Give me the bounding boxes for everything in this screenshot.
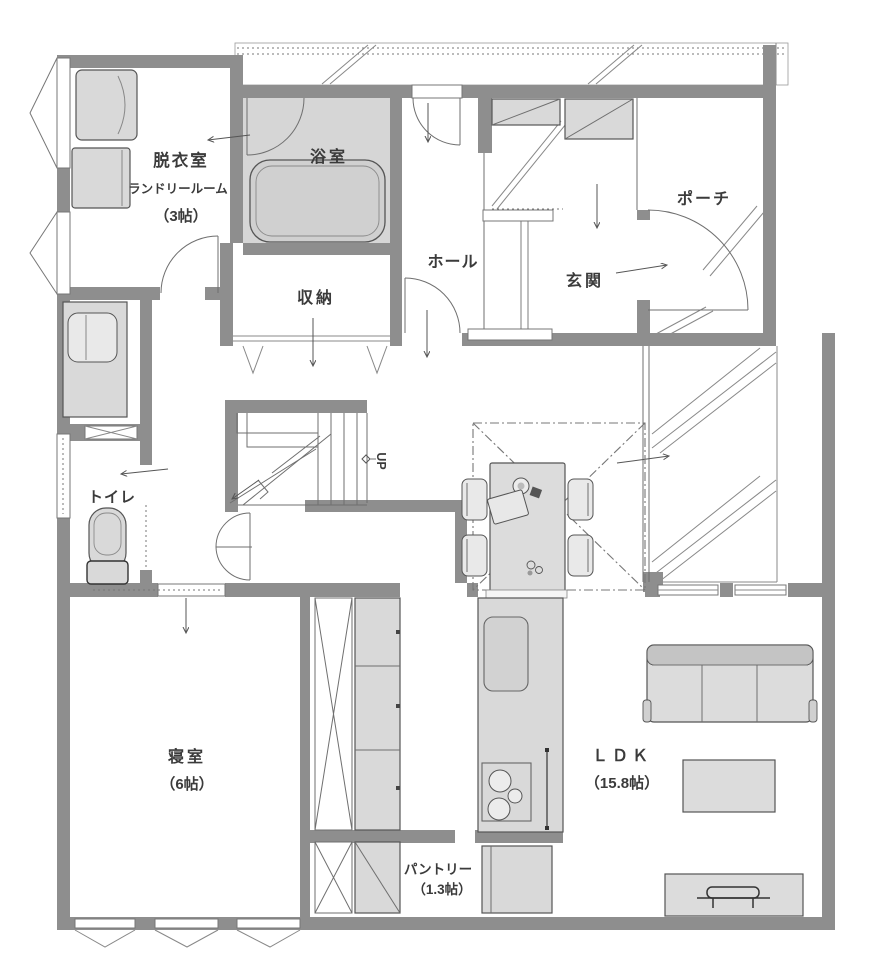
refrigerator-space xyxy=(482,846,552,913)
label-pantry: パントリー xyxy=(404,862,472,877)
lower-closet xyxy=(315,842,400,913)
kitchen xyxy=(478,598,563,913)
label-laundry: 脱衣室 xyxy=(153,150,209,170)
bedroom-windows xyxy=(75,919,300,947)
washing-machine xyxy=(76,70,137,140)
label-laundry-sub: ランドリールーム xyxy=(128,182,228,196)
bathtub xyxy=(250,160,385,242)
label-pantry-size: （1.3帖） xyxy=(412,881,471,897)
laundry-door xyxy=(161,236,218,293)
eave-band xyxy=(235,43,788,85)
shoe-closet xyxy=(468,99,633,340)
floor-plan-page: 脱衣室 ランドリールーム （3帖） 浴室 収納 ホール 玄関 ポーチ トイレ 寝… xyxy=(0,0,896,961)
label-ldk: ＬＤＫ xyxy=(592,748,652,765)
label-porch: ポーチ xyxy=(677,189,731,208)
tv-board xyxy=(665,874,803,916)
hall-shelf-unit xyxy=(355,598,400,830)
hall-step xyxy=(468,329,552,340)
service-door-frame xyxy=(412,85,462,98)
closets xyxy=(315,598,400,913)
dining-set xyxy=(462,423,645,598)
front-door xyxy=(648,210,748,310)
casement-window-left-2 xyxy=(30,212,70,294)
service-door xyxy=(413,98,460,145)
cooktop xyxy=(482,763,531,821)
bedroom-closet xyxy=(315,598,352,830)
labels: 脱衣室 ランドリールーム （3帖） 浴室 収納 ホール 玄関 ポーチ トイレ 寝… xyxy=(88,147,731,897)
label-bedroom: 寝室 xyxy=(168,747,206,766)
sic-sliding-door xyxy=(492,121,566,209)
floor-plan-svg: 脱衣室 ランドリールーム （3帖） 浴室 収納 ホール 玄関 ポーチ トイレ 寝… xyxy=(0,0,896,961)
understair-closet-doors xyxy=(216,513,252,580)
stairs xyxy=(230,413,376,505)
label-bedroom-size: （6帖） xyxy=(160,775,213,793)
entrance-step xyxy=(483,210,553,221)
vanity-unit xyxy=(63,302,127,417)
toilet-window xyxy=(57,434,70,518)
toilet-fixture xyxy=(87,508,128,584)
label-ldk-size: （15.8帖） xyxy=(585,774,659,792)
coffee-table xyxy=(683,760,775,812)
up-leader xyxy=(362,455,376,463)
kitchen-sink xyxy=(484,617,528,691)
label-hall: ホール xyxy=(427,253,478,271)
label-laundry-size: （3帖） xyxy=(154,207,207,225)
hall-door xyxy=(405,278,460,333)
casement-window-left-1 xyxy=(30,58,70,168)
label-stairs-up: UP xyxy=(374,452,388,469)
label-storage: 収納 xyxy=(297,288,335,307)
label-bath: 浴室 xyxy=(310,147,348,166)
label-entrance: 玄関 xyxy=(566,271,604,290)
label-toilet: トイレ xyxy=(88,489,136,506)
sofa xyxy=(643,645,817,722)
storage-folding-doors xyxy=(243,346,387,373)
laundry-unit xyxy=(72,148,130,208)
deck-terrace xyxy=(651,346,777,582)
transom-window xyxy=(85,426,137,439)
doors xyxy=(93,98,748,596)
living-furniture xyxy=(643,645,817,916)
